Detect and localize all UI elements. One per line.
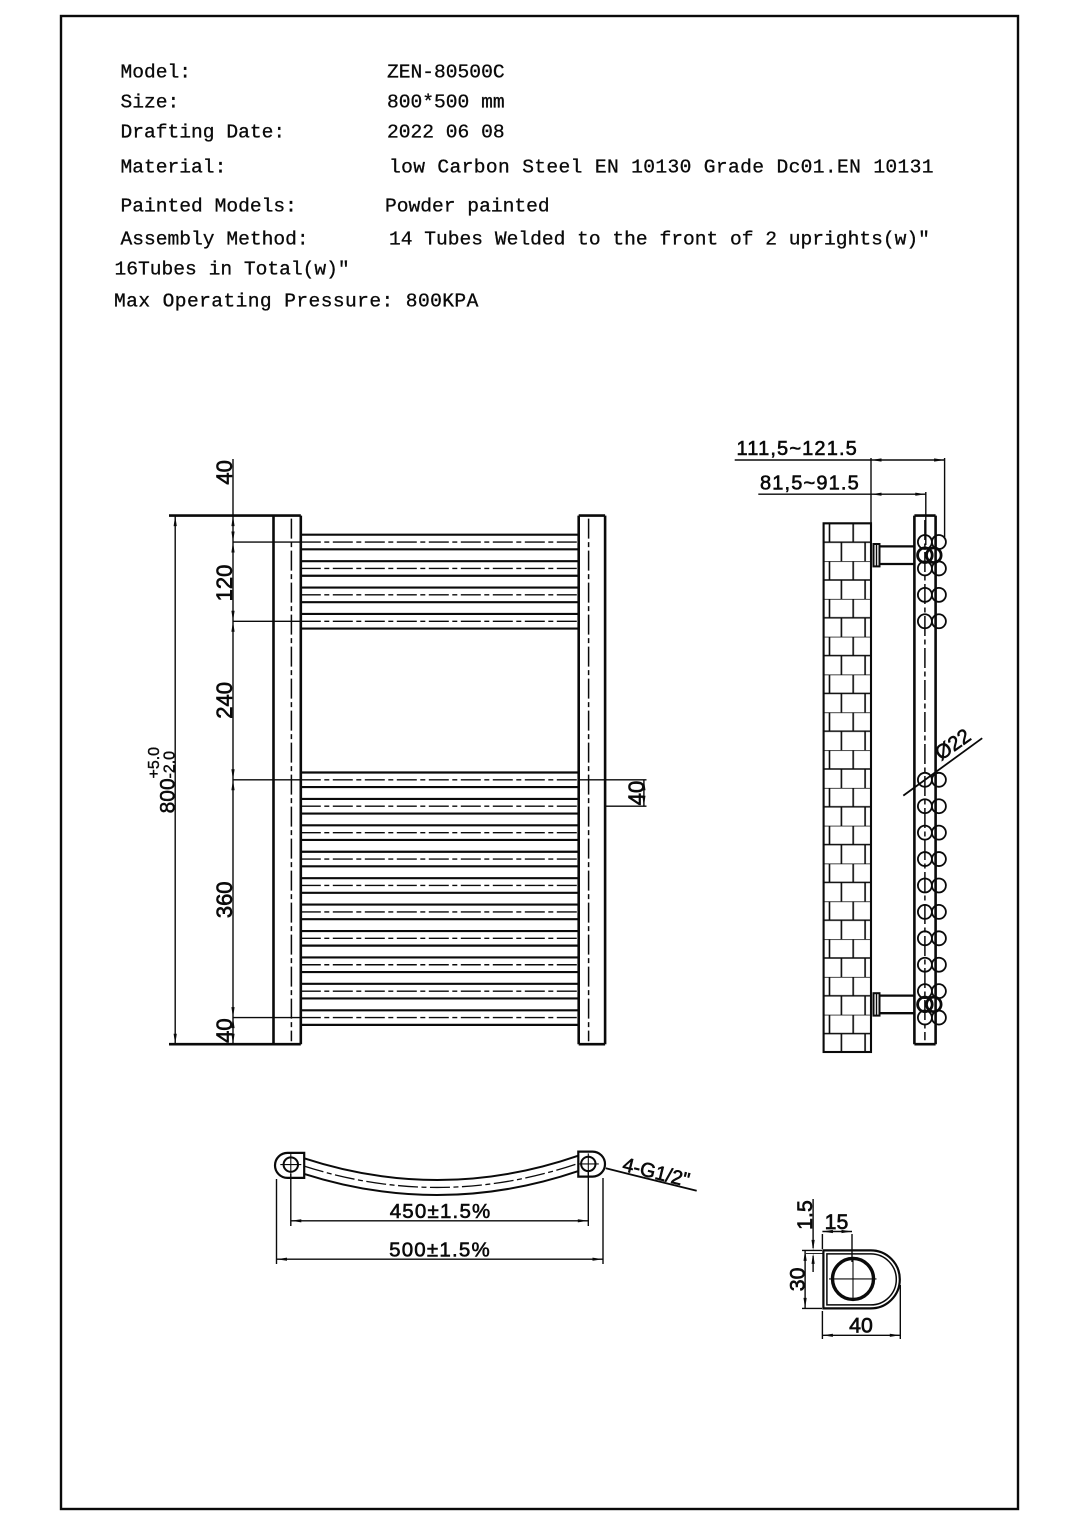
svg-text:1.5: 1.5 bbox=[793, 1200, 817, 1230]
svg-text:ZEN-80500C: ZEN-80500C bbox=[387, 62, 505, 84]
svg-text:81,5~91.5: 81,5~91.5 bbox=[760, 473, 860, 495]
svg-text:120: 120 bbox=[212, 565, 237, 602]
svg-text:14 Tubes Welded to the front o: 14 Tubes Welded to the front of 2 uprigh… bbox=[389, 229, 930, 251]
svg-text:Model:: Model: bbox=[121, 62, 192, 84]
svg-text:Max Operating Pressure: 800KPA: Max Operating Pressure: 800KPA bbox=[114, 291, 479, 313]
svg-text:40: 40 bbox=[212, 460, 237, 484]
svg-text:500±1.5%: 500±1.5% bbox=[389, 1239, 491, 1262]
svg-text:360: 360 bbox=[212, 881, 237, 918]
svg-text:16Tubes in Total(w)": 16Tubes in Total(w)" bbox=[115, 259, 350, 281]
svg-text:Drafting Date:: Drafting Date: bbox=[121, 122, 286, 144]
svg-text:800*500 mm: 800*500 mm bbox=[387, 92, 505, 114]
svg-text:+5.0: +5.0 bbox=[146, 747, 163, 779]
svg-text:30: 30 bbox=[785, 1267, 809, 1291]
svg-text:15: 15 bbox=[825, 1210, 849, 1234]
svg-text:low Carbon Steel EN 10130 Gra: low Carbon Steel EN 10130 Grade Dc01.EN … bbox=[389, 157, 934, 179]
svg-text:Powder painted: Powder painted bbox=[385, 196, 550, 218]
svg-text:800: 800 bbox=[157, 778, 180, 813]
svg-text:450±1.5%: 450±1.5% bbox=[390, 1200, 492, 1223]
svg-text:40: 40 bbox=[212, 1018, 237, 1042]
svg-text:40: 40 bbox=[624, 781, 649, 805]
svg-text:240: 240 bbox=[212, 682, 237, 719]
svg-text:Size:: Size: bbox=[121, 92, 180, 114]
svg-text:4-G1/2": 4-G1/2" bbox=[620, 1154, 692, 1192]
svg-text:Assembly Method:: Assembly Method: bbox=[121, 229, 309, 251]
svg-text:40: 40 bbox=[849, 1314, 873, 1338]
svg-text:2022 06 08: 2022 06 08 bbox=[387, 122, 505, 144]
svg-text:Material:: Material: bbox=[121, 157, 227, 179]
svg-text:Painted Models:: Painted Models: bbox=[121, 196, 297, 218]
svg-text:-2.0: -2.0 bbox=[161, 751, 178, 779]
svg-text:111,5~121.5: 111,5~121.5 bbox=[737, 438, 858, 460]
